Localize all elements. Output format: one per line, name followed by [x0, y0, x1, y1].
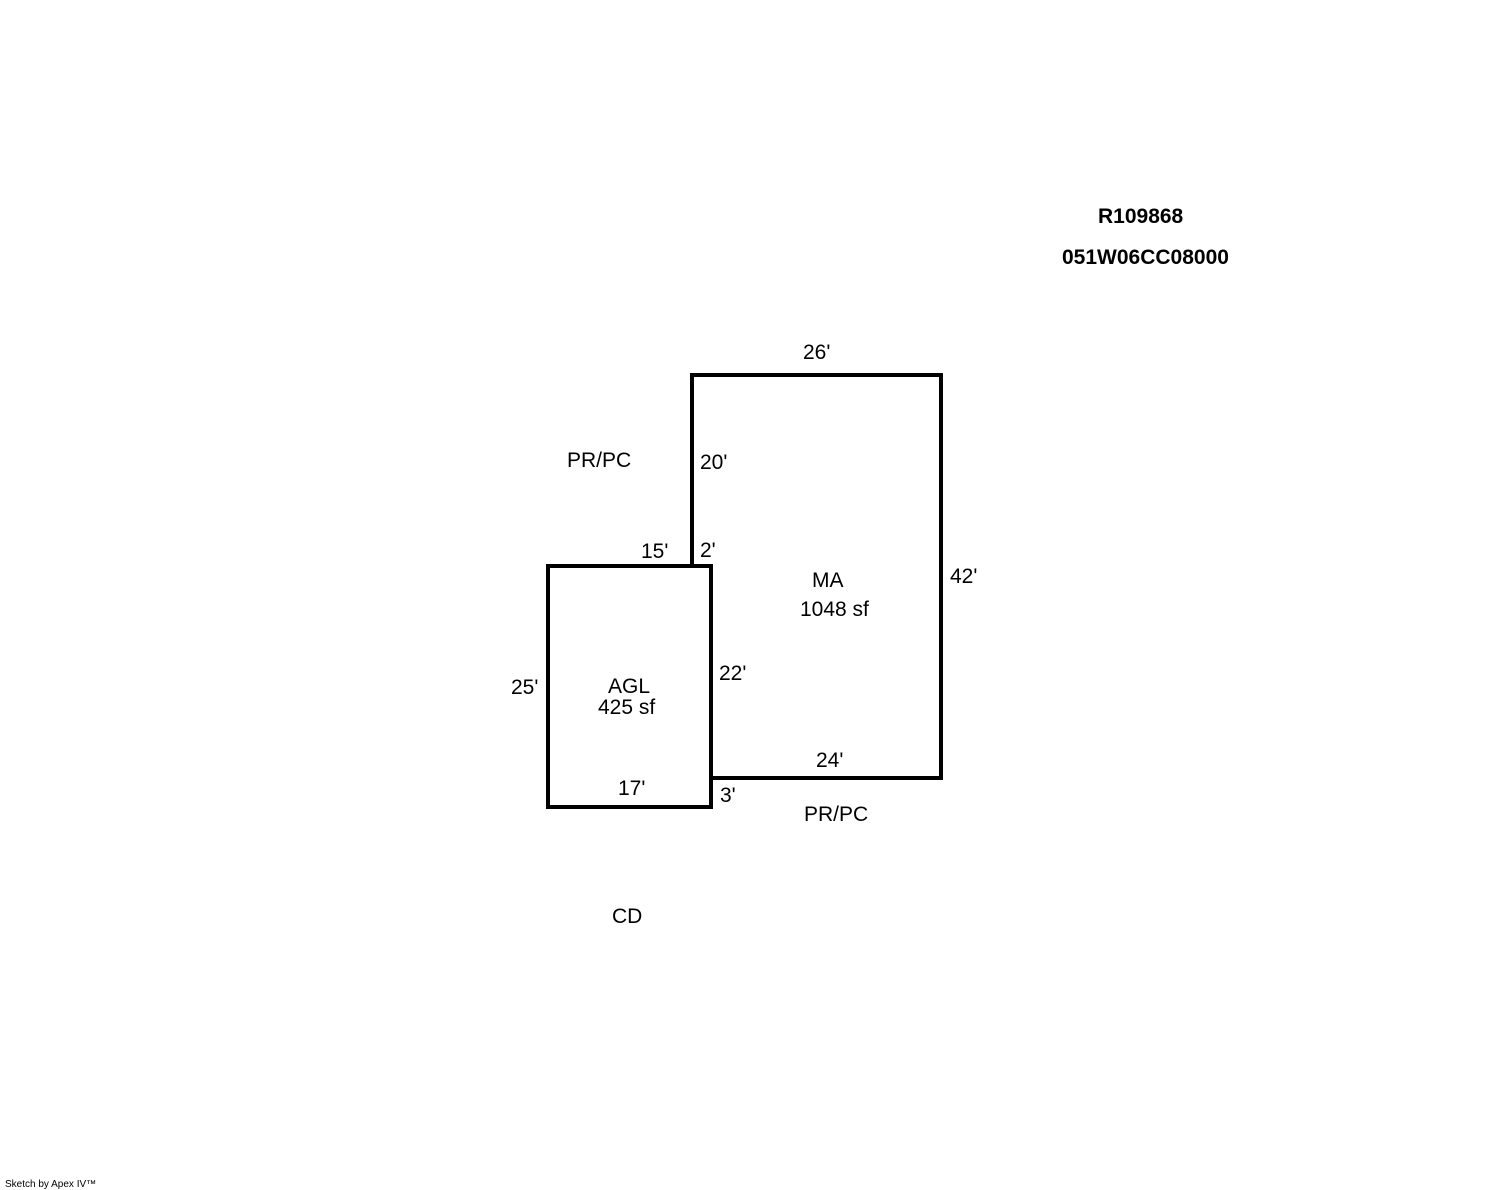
svg-text:MA: MA — [812, 569, 844, 592]
svg-text:PR/PC: PR/PC — [804, 803, 868, 826]
svg-text:051W06CC08000: 051W06CC08000 — [1062, 246, 1229, 269]
svg-text:2': 2' — [700, 539, 716, 562]
svg-text:3': 3' — [720, 784, 736, 807]
svg-text:AGL: AGL — [608, 675, 650, 698]
svg-text:20': 20' — [700, 451, 727, 474]
svg-text:1048 sf: 1048 sf — [800, 598, 869, 621]
svg-text:425 sf: 425 sf — [598, 696, 655, 719]
svg-text:R109868: R109868 — [1098, 205, 1184, 228]
svg-text:CD: CD — [612, 905, 642, 928]
svg-text:24': 24' — [816, 749, 843, 772]
svg-text:17': 17' — [618, 777, 645, 800]
svg-text:Sketch by Apex IV™: Sketch by Apex IV™ — [5, 1179, 96, 1190]
svg-text:PR/PC: PR/PC — [567, 449, 631, 472]
svg-text:15': 15' — [641, 540, 668, 563]
svg-text:42': 42' — [950, 565, 977, 588]
svg-text:25': 25' — [511, 676, 538, 699]
svg-text:22': 22' — [719, 662, 746, 685]
svg-text:26': 26' — [803, 341, 830, 364]
